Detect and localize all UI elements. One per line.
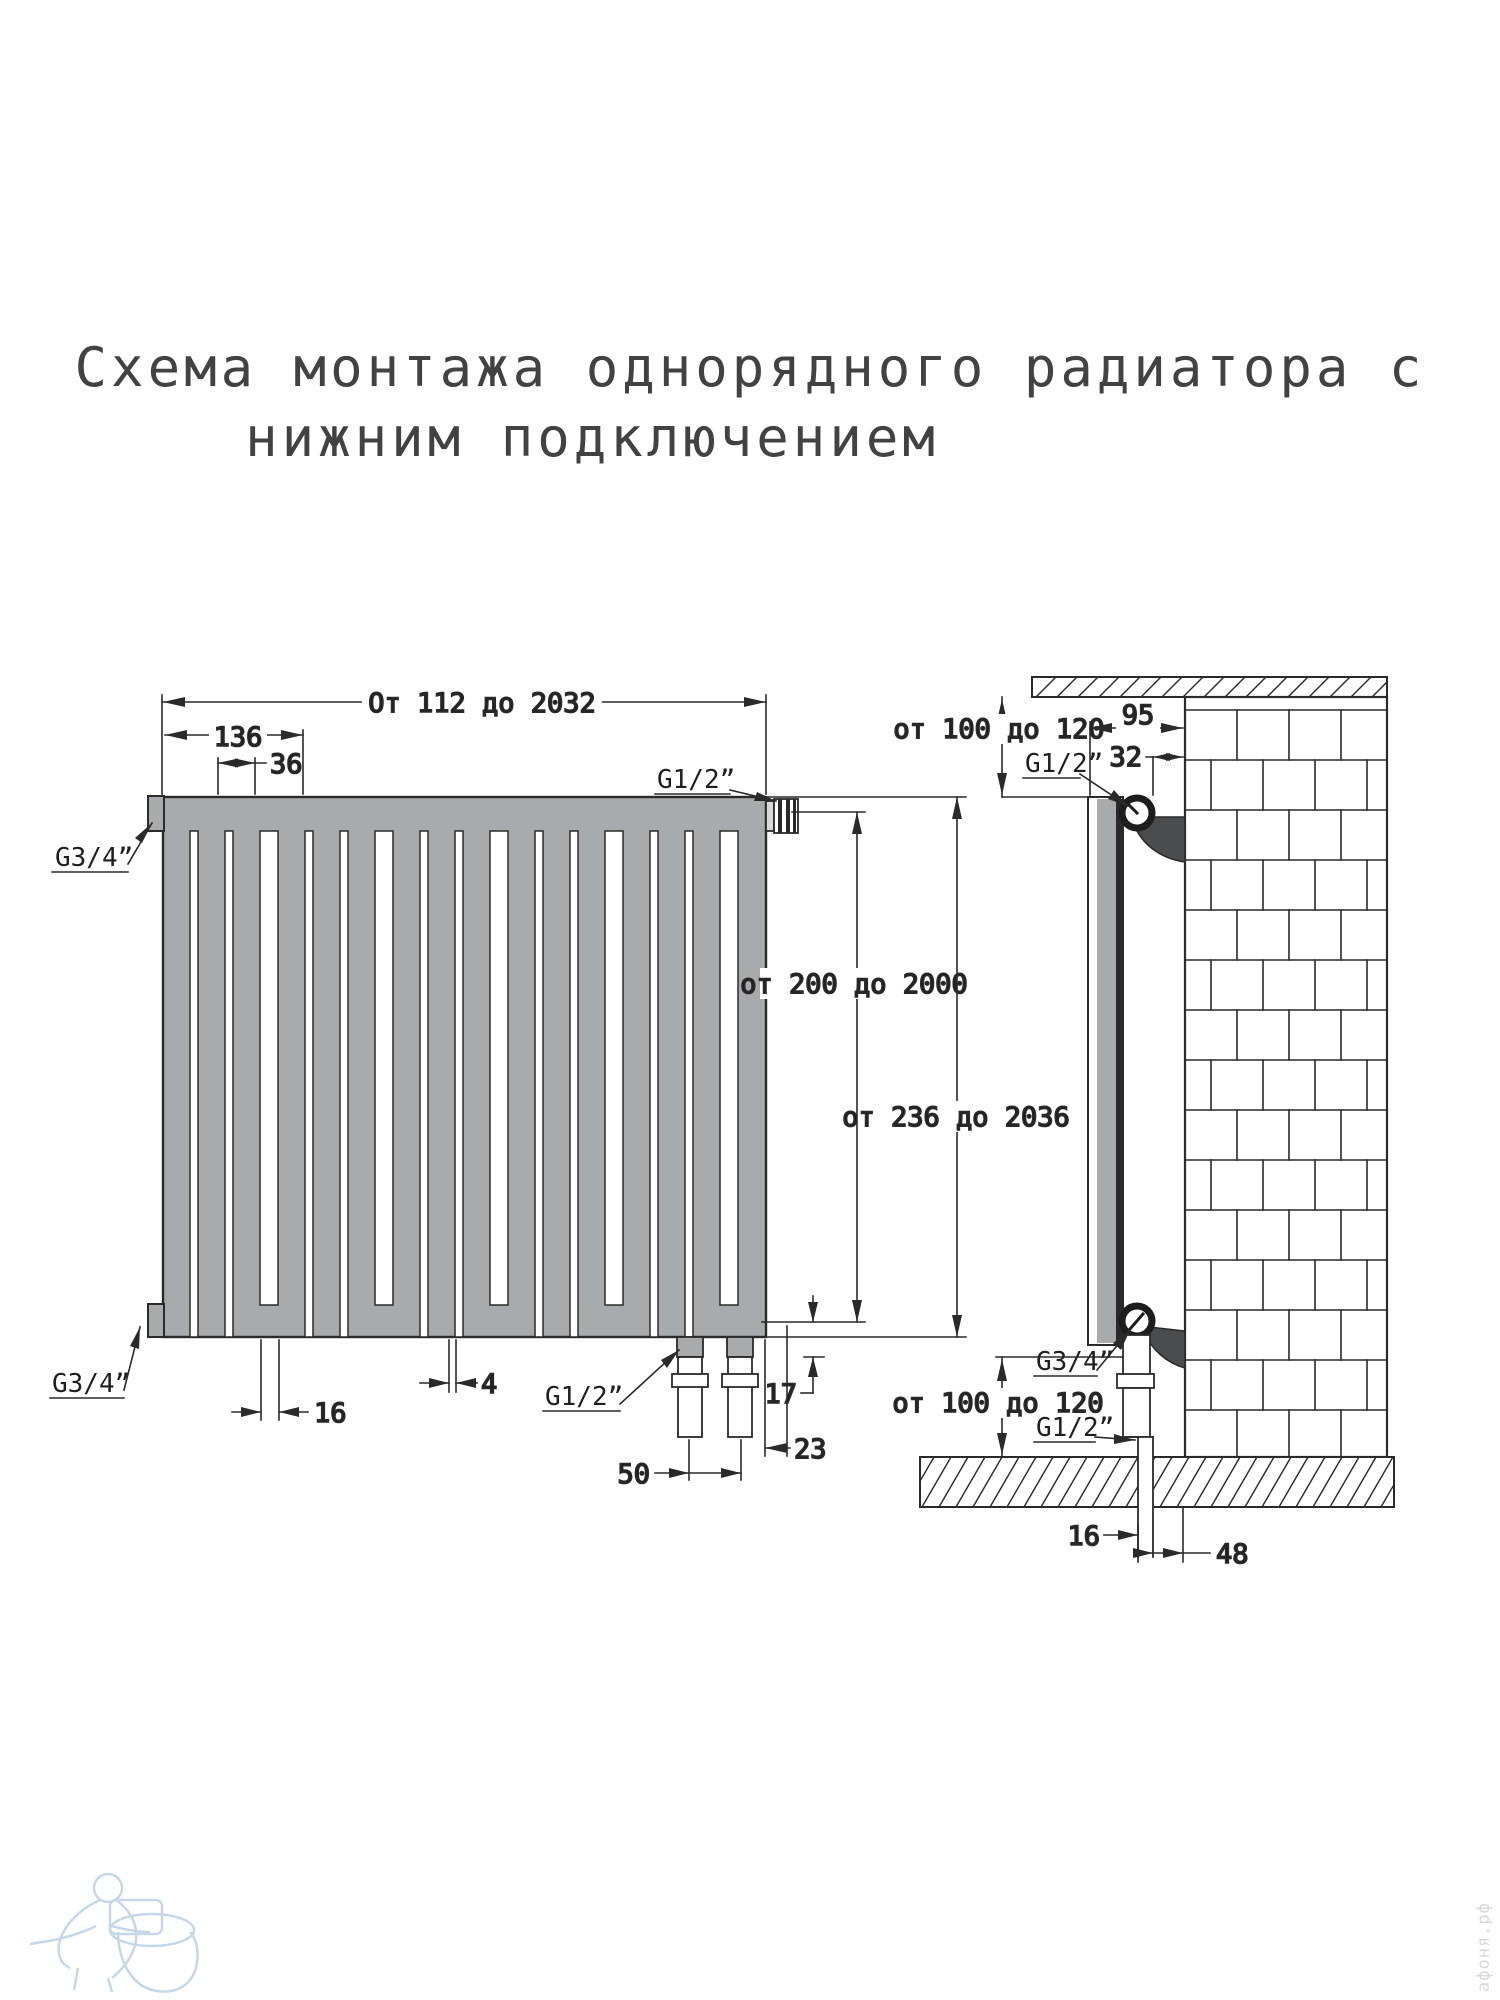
dim-total-height-text: от 236 до 2036 [842, 1102, 1070, 1133]
dimension-total-height: от 236 до 2036 [768, 797, 1070, 1337]
mounting-bracket-top [1122, 798, 1185, 862]
page-title: Схема монтажа однорядного радиатора с ни… [75, 336, 1426, 469]
wall-bricks [1185, 697, 1387, 1457]
dim-48-text: 48 [1216, 1539, 1249, 1570]
dim-136-text: 136 [214, 722, 263, 753]
dim-95-text: 95 [1122, 700, 1155, 731]
floor-hatch [920, 1457, 1394, 1507]
bottom-pipe-1 [672, 1357, 708, 1437]
dimension-16-front: 16 [232, 1340, 347, 1429]
bottom-stub-2 [727, 1337, 753, 1357]
leader-g12-side-bottom: G1/2” [1034, 1413, 1135, 1444]
front-radiator [148, 796, 798, 1437]
front-view: От 112 до 2032 136 36 G3/4” [50, 687, 1070, 1490]
watermark-plumber-logo [30, 1874, 198, 1992]
dimension-36: 36 [218, 749, 303, 794]
leader-g12-bottom: G1/2” [543, 1350, 679, 1412]
left-bottom-stub [148, 1304, 164, 1337]
dim-17-text: 17 [764, 1379, 797, 1410]
bottom-pipe-2 [722, 1357, 758, 1437]
dimension-16-side: 16 [1067, 1521, 1138, 1562]
dimension-50: 50 [617, 1440, 741, 1490]
dim-23-text: 23 [794, 1434, 827, 1465]
g34-bottom-label: G3/4” [52, 1369, 130, 1399]
dim-16-front-text: 16 [314, 1398, 347, 1429]
g34-side-bottom-label: G3/4” [1036, 1347, 1114, 1377]
leader-g34-bottom: G3/4” [50, 1327, 140, 1399]
ceiling-hatch [1032, 677, 1387, 697]
bottom-stub-1 [677, 1337, 703, 1357]
dim-36-text: 36 [270, 749, 303, 780]
g12-bottom-label: G1/2” [545, 1382, 623, 1412]
side-bottom-pipe [1117, 1335, 1154, 1437]
dim-4-text: 4 [481, 1369, 497, 1400]
title-line-1: Схема монтажа однорядного радиатора с [75, 336, 1426, 399]
watermark-site-text: афоня.рф [1474, 1902, 1494, 1992]
dim-width-range-text: От 112 до 2032 [368, 688, 596, 719]
dim-16-side-text: 16 [1067, 1521, 1100, 1552]
radiator-installation-diagram: Схема монтажа однорядного радиатора с ни… [0, 0, 1500, 2000]
dimension-4: 4 [420, 1340, 497, 1400]
dimension-top-clearance: от 100 до 120 [893, 697, 1104, 797]
dimension-32: 32 [1109, 742, 1183, 795]
dimension-axis-height: от 200 до 2000 [740, 812, 968, 1322]
g12-side-bottom-label: G1/2” [1036, 1413, 1114, 1443]
dim-32-text: 32 [1109, 742, 1142, 773]
dim-top-clearance-text: от 100 до 120 [893, 714, 1104, 745]
dim-50-text: 50 [617, 1459, 650, 1490]
leader-g12-top: G1/2” [655, 765, 776, 801]
g12-top-label: G1/2” [657, 765, 735, 795]
dim-axis-height-text: от 200 до 2000 [740, 969, 968, 1000]
radiator-installation-diagram-page: Схема монтажа однорядного радиатора с ни… [0, 0, 1500, 2000]
g12-side-top-label: G1/2” [1025, 749, 1103, 779]
g34-top-label: G3/4” [55, 843, 133, 873]
leader-g34-top: G3/4” [52, 823, 152, 873]
title-line-2: нижним подключением [245, 406, 939, 469]
side-radiator [1088, 797, 1123, 1345]
dimension-17: 17 [764, 1296, 824, 1410]
air-valve [766, 799, 798, 833]
